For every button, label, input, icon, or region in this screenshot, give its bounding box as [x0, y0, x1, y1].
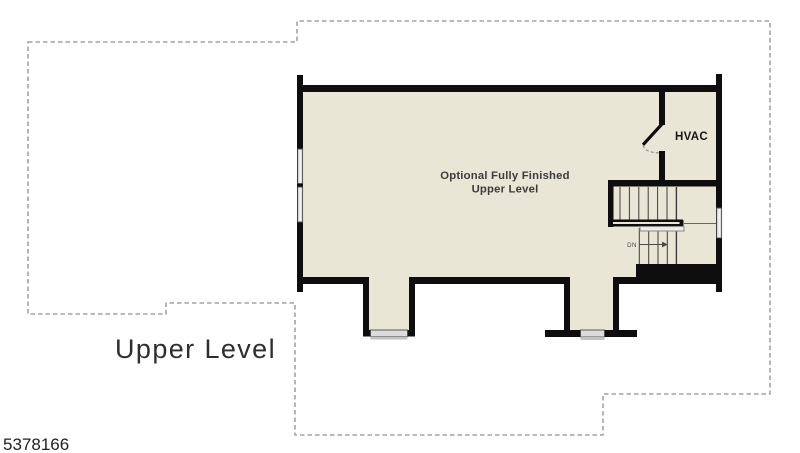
stairwell-top-wall — [608, 180, 722, 187]
right-window — [717, 208, 722, 238]
dormer1-right-wall — [409, 277, 415, 331]
dormer1-sill-right — [407, 330, 415, 337]
left-window-lower — [298, 187, 303, 222]
dormer2-sill-right — [604, 330, 637, 337]
hvac-partition-lower — [659, 151, 665, 182]
hvac-partition-upper — [659, 89, 665, 125]
floorplan-page: DN Optional Fully Finished Upper Level H… — [0, 0, 800, 453]
dormer2-sill-left — [545, 330, 581, 337]
room-label-line1: Optional Fully Finished — [440, 170, 570, 182]
dormer2-window — [581, 330, 605, 340]
dormer2-left-wall — [564, 277, 570, 331]
dormer2-right-wall — [613, 277, 619, 331]
bottom-wall-right — [613, 277, 722, 284]
dormer1-window — [371, 330, 408, 340]
left-window-upper — [298, 149, 303, 184]
floorplan-svg: DN Optional Fully Finished Upper Level H… — [0, 0, 800, 453]
dormer1-sill-left — [363, 330, 371, 337]
top-exterior-wall — [297, 85, 722, 92]
bottom-wall-left — [300, 277, 369, 284]
level-title: Upper Level — [115, 334, 276, 364]
hvac-room-label: HVAC — [675, 131, 708, 143]
listing-number: 5378166 — [3, 435, 69, 453]
dormer1-left-wall — [363, 277, 369, 331]
bottom-wall-middle — [409, 277, 570, 284]
stair-landing-mass — [636, 264, 716, 278]
room-label-line2: Upper Level — [472, 184, 539, 196]
stairs-dn-label: DN — [627, 242, 637, 249]
